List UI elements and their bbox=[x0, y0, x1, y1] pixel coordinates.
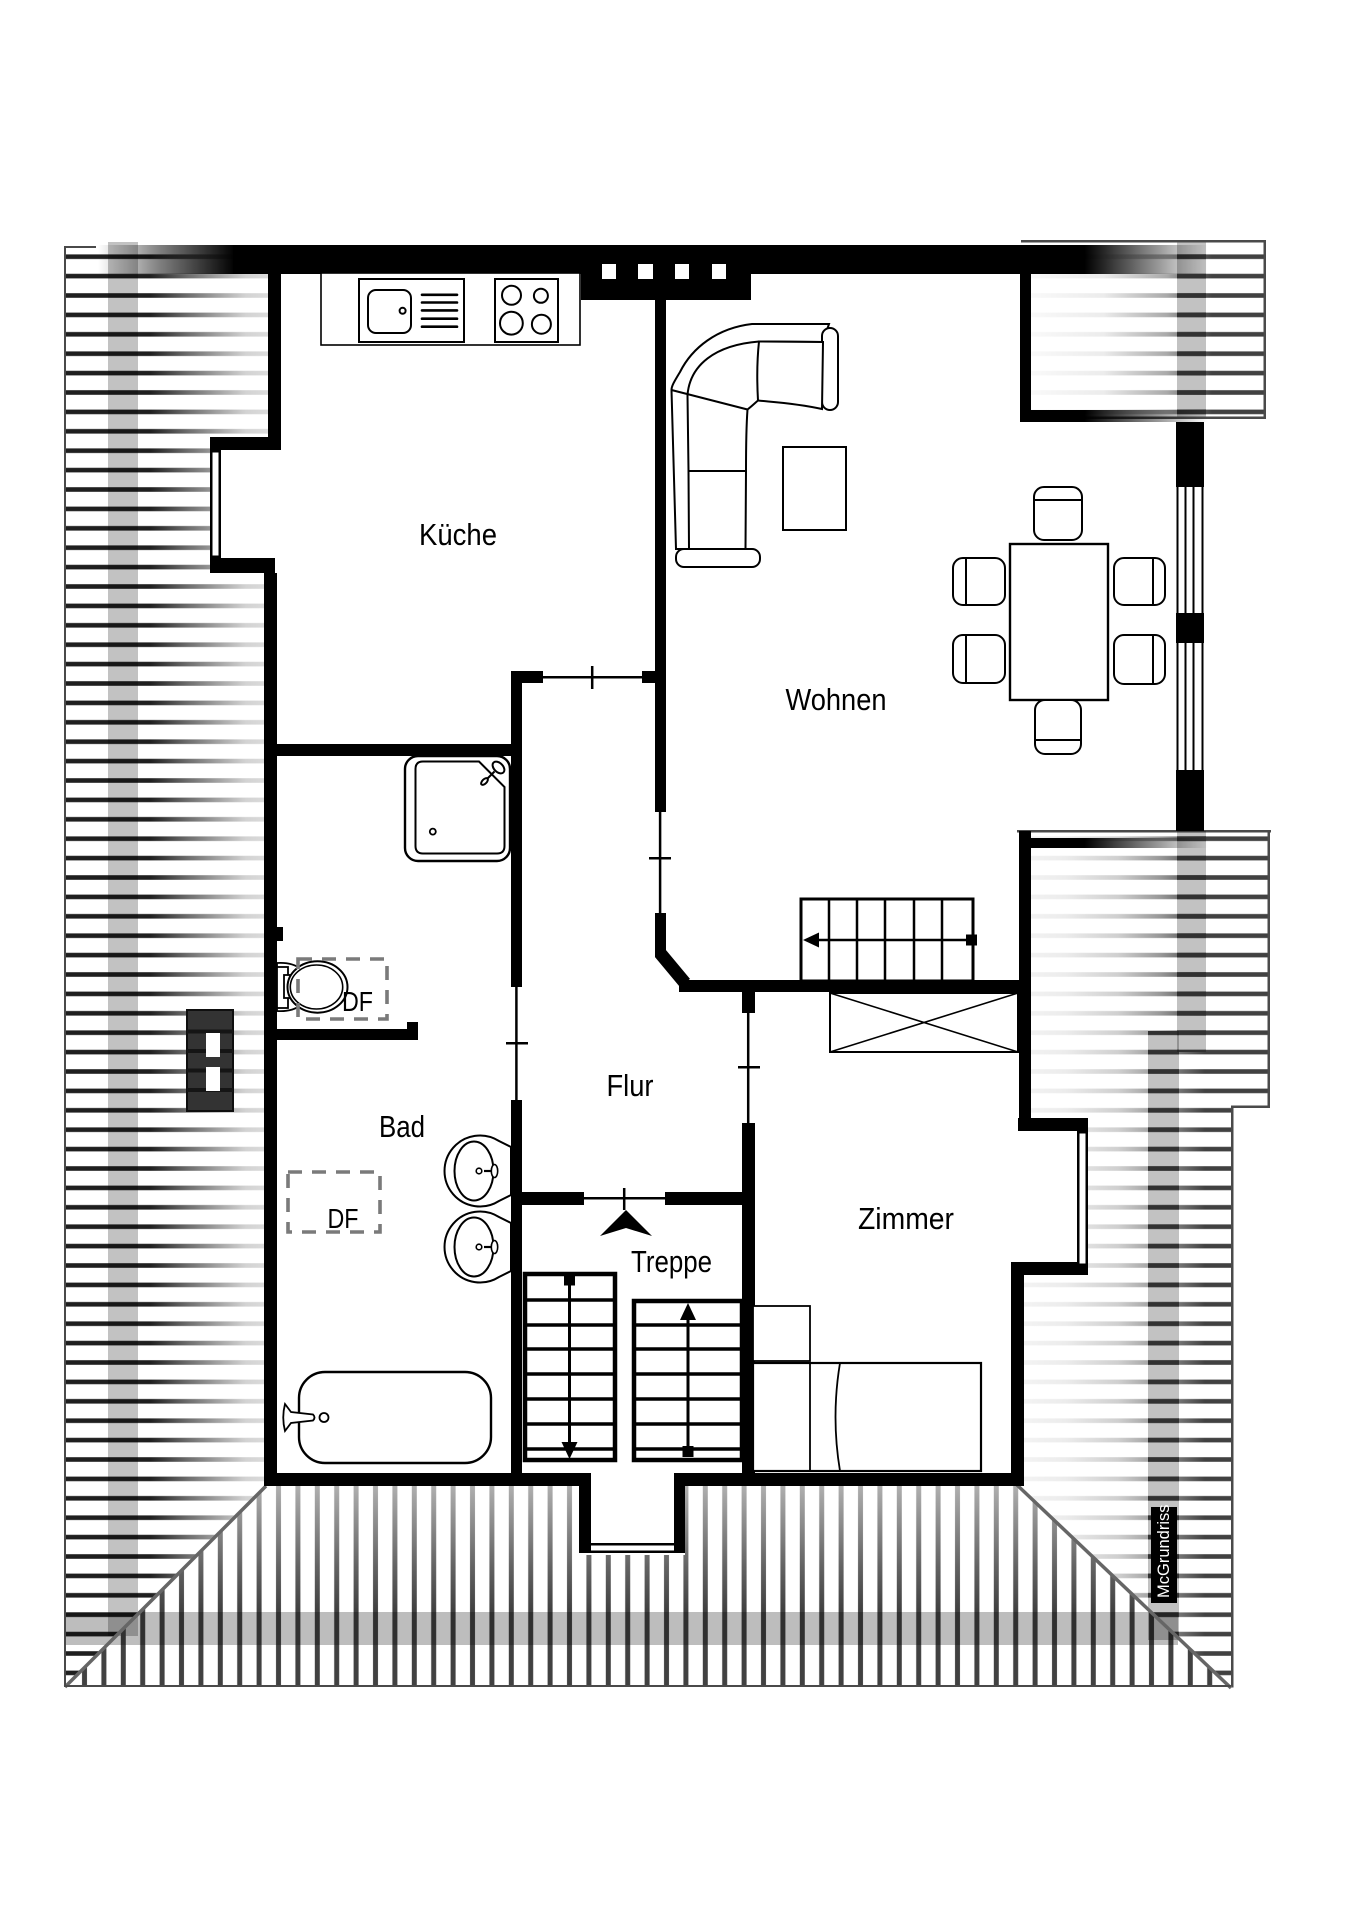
svg-text:Bad: Bad bbox=[379, 1109, 425, 1144]
svg-text:McGrundriss: McGrundriss bbox=[1155, 1504, 1173, 1598]
svg-text:Flur: Flur bbox=[607, 1068, 654, 1103]
svg-text:Wohnen: Wohnen bbox=[786, 682, 887, 717]
svg-text:DF: DF bbox=[328, 1203, 359, 1234]
svg-text:Treppe: Treppe bbox=[631, 1244, 712, 1279]
svg-text:Küche: Küche bbox=[419, 517, 497, 552]
svg-text:DF: DF bbox=[342, 986, 373, 1017]
svg-text:Zimmer: Zimmer bbox=[858, 1201, 954, 1236]
